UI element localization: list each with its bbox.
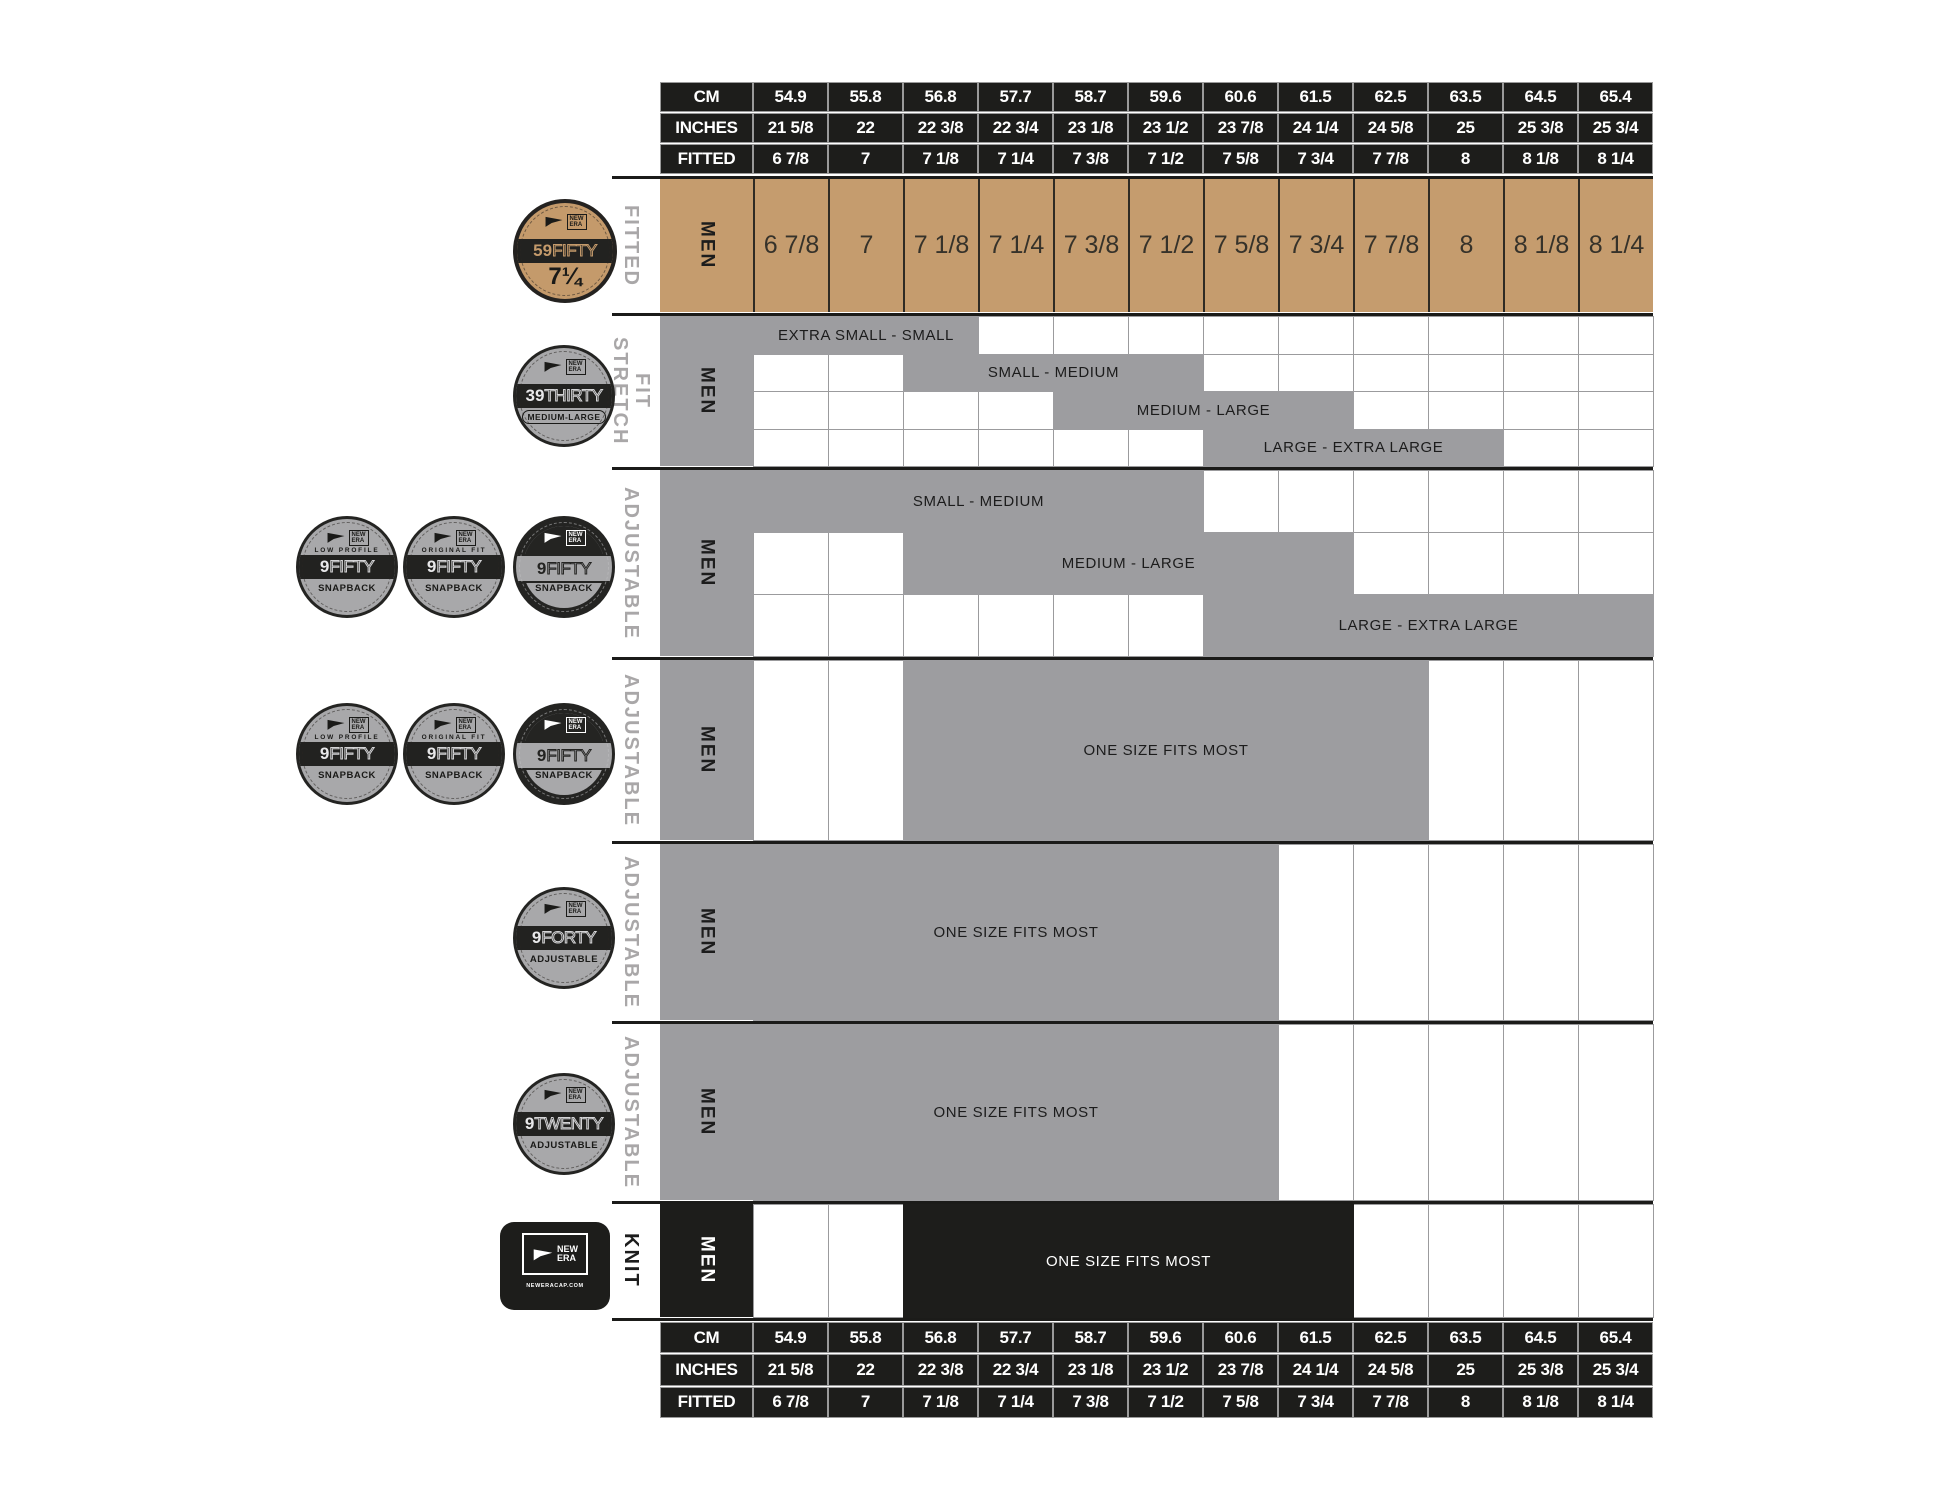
- footer-fitted-cell: 7 7/8: [1353, 1387, 1428, 1418]
- section-label-adjustable-9twenty: ADJUSTABLE: [610, 1022, 652, 1202]
- header-fitted-cell: 7 3/4: [1278, 144, 1353, 174]
- grid-cell: [1503, 844, 1579, 1021]
- section-divider: [612, 1021, 1653, 1024]
- fitted-size-cell: 8: [1428, 179, 1503, 312]
- section-label-adjustable-9forty: ADJUSTABLE: [610, 842, 652, 1022]
- badge-b9fifty-low: NEWERALOW PROFILE9FIFTYSNAPBACK: [296, 516, 398, 618]
- footer-fitted-cell: 7 3/4: [1278, 1387, 1353, 1418]
- header-fitted-cell: 7 5/8: [1203, 144, 1278, 174]
- bar-one-size-fits-most: ONE SIZE FITS MOST: [903, 660, 1429, 841]
- grid-cell: [1203, 354, 1279, 393]
- header-inches-cell: 25: [1428, 113, 1503, 143]
- badge-wordmark: 9FIFTY: [406, 555, 502, 579]
- grid-cell: [1578, 844, 1654, 1021]
- fitted-size-cell: 7 5/8: [1203, 179, 1278, 312]
- badge-wordmark: 39THIRTY: [516, 384, 612, 408]
- footer-inches-cell: 23 7/8: [1203, 1354, 1278, 1385]
- header-cm-cell: 63.5: [1428, 82, 1503, 112]
- fitted-size-cell: 8 1/8: [1503, 179, 1578, 312]
- fitted-size-cell: 7 1/4: [978, 179, 1053, 312]
- header-fitted-cell: 7 1/4: [978, 144, 1053, 174]
- grid-cell: [753, 354, 829, 393]
- header-inches-cell: 23 7/8: [1203, 113, 1278, 143]
- grid-cell: [1578, 532, 1654, 595]
- footer-cm-cell: 63.5: [1428, 1322, 1503, 1353]
- footer-fitted-cell: 8 1/8: [1503, 1387, 1578, 1418]
- badge-b9fifty-low: NEWERALOW PROFILE9FIFTYSNAPBACK: [296, 703, 398, 805]
- footer-inches-cell: 25: [1428, 1354, 1503, 1385]
- grid-cell: [1128, 594, 1204, 657]
- bar-small-medium: SMALL - MEDIUM: [753, 470, 1204, 533]
- fitted-size-cell: 7 1/2: [1128, 179, 1203, 312]
- fitted-size-cell: 7 7/8: [1353, 179, 1428, 312]
- grid-cell: [1578, 316, 1654, 355]
- grid-cell: [1428, 844, 1504, 1021]
- grid-cell: [1578, 1204, 1654, 1318]
- header-cm-cell: 55.8: [828, 82, 903, 112]
- grid-cell: [828, 594, 904, 657]
- grid-cell: [828, 429, 904, 468]
- section-divider: [612, 1318, 1653, 1321]
- grid-cell: [753, 532, 829, 595]
- newera-flag-logo: NEWERA: [299, 530, 395, 547]
- header-row-label-fitted: FITTED: [660, 144, 753, 174]
- grid-cell: [1428, 470, 1504, 533]
- grid-cell: [1503, 532, 1579, 595]
- badge-b9fifty: NEWERA9FIFTYSNAPBACK: [513, 516, 615, 618]
- grid-cell: [1503, 316, 1579, 355]
- fitted-size-cell: 7: [828, 179, 903, 312]
- newera-logo-text: NEW ERA: [557, 1245, 578, 1264]
- newera-flag-logo: NEWERA: [516, 359, 612, 376]
- footer-cm-cell: 56.8: [903, 1322, 978, 1353]
- badge-b39thirty: NEWERA39THIRTYMEDIUM-LARGE: [513, 345, 615, 447]
- newera-flag-logo: NEWERA: [516, 901, 612, 918]
- grid-cell: [828, 391, 904, 430]
- grid-cell: [1053, 594, 1129, 657]
- header-inches-cell: 22 3/8: [903, 113, 978, 143]
- footer-fitted-cell: 7 1/2: [1128, 1387, 1203, 1418]
- grid-cell: [1503, 1204, 1579, 1318]
- header-cm-cell: 59.6: [1128, 82, 1203, 112]
- section-label-adjustable-9fifty-b: ADJUSTABLE: [610, 658, 652, 842]
- header-inches-cell: 23 1/8: [1053, 113, 1128, 143]
- header-fitted-cell: 7 1/8: [903, 144, 978, 174]
- newera-flag-logo: NEW ERA: [522, 1233, 588, 1275]
- flag-icon: [543, 1088, 563, 1101]
- header-inches-cell: 24 5/8: [1353, 113, 1428, 143]
- badge-wordmark: 9FIFTY: [406, 742, 502, 766]
- footer-inches-cell: 22 3/4: [978, 1354, 1053, 1385]
- grid-cell: [1428, 1204, 1504, 1318]
- header-cm-cell: 62.5: [1353, 82, 1428, 112]
- section-divider: [612, 176, 1653, 179]
- fitted-size-cell: 7 3/4: [1278, 179, 1353, 312]
- header-inches-cell: 21 5/8: [753, 113, 828, 143]
- new-era-size-chart: NEW ERA NEWERACAP.COM CM54.955.856.857.7…: [0, 0, 1946, 1504]
- grid-cell: [753, 1204, 829, 1318]
- grid-cell: [1203, 470, 1279, 533]
- footer-cm-cell: 58.7: [1053, 1322, 1128, 1353]
- grid-cell: [1578, 470, 1654, 533]
- fitted-size-cell: 6 7/8: [753, 179, 828, 312]
- footer-fitted-cell: 6 7/8: [753, 1387, 828, 1418]
- grid-cell: [1503, 354, 1579, 393]
- grid-cell: [1278, 470, 1354, 533]
- footer-cm-cell: 54.9: [753, 1322, 828, 1353]
- fitted-size-cell: 7 3/8: [1053, 179, 1128, 312]
- grid-cell: [903, 391, 979, 430]
- grid-cell: [903, 429, 979, 468]
- grid-cell: [1428, 532, 1504, 595]
- grid-cell: [1428, 316, 1504, 355]
- bar-extra-small-small: EXTRA SMALL - SMALL: [753, 316, 979, 355]
- fitted-size-cell: 7 1/8: [903, 179, 978, 312]
- footer-inches-cell: 22: [828, 1354, 903, 1385]
- footer-fitted-cell: 7 1/8: [903, 1387, 978, 1418]
- flag-icon: [326, 718, 346, 731]
- newera-flag-logo: NEWERA: [516, 1087, 612, 1104]
- footer-cm-cell: 62.5: [1353, 1322, 1428, 1353]
- newera-flag-logo: NEWERA: [516, 530, 612, 547]
- badge-wordmark: 59FIFTY: [517, 239, 613, 263]
- grid-cell: [753, 660, 829, 841]
- footer-inches-cell: 25 3/4: [1578, 1354, 1653, 1385]
- grid-cell: [1428, 391, 1504, 430]
- grid-cell: [978, 316, 1054, 355]
- section-divider: [612, 1201, 1653, 1204]
- grid-cell: [1503, 391, 1579, 430]
- footer-cm-cell: 64.5: [1503, 1322, 1578, 1353]
- footer-row-label-fitted: FITTED: [660, 1387, 753, 1418]
- header-cm-cell: 60.6: [1203, 82, 1278, 112]
- header-inches-cell: 23 1/2: [1128, 113, 1203, 143]
- men-column-adjustable-9fifty-b: MEN: [660, 660, 753, 840]
- grid-cell: [903, 594, 979, 657]
- grid-cell: [1353, 1204, 1429, 1318]
- grid-cell: [1053, 316, 1129, 355]
- grid-cell: [1428, 660, 1504, 841]
- bar-large-extra-large: LARGE - EXTRA LARGE: [1203, 594, 1654, 657]
- footer-cm-cell: 61.5: [1278, 1322, 1353, 1353]
- grid-cell: [1128, 429, 1204, 468]
- newera-flag-logo: NEWERA: [517, 214, 613, 231]
- fitted-sizes-row: 6 7/877 1/87 1/47 3/87 1/27 5/87 3/47 7/…: [753, 179, 1653, 312]
- grid-cell: [828, 660, 904, 841]
- grid-cell: [1353, 844, 1429, 1021]
- section-label-knit: KNIT: [610, 1202, 652, 1319]
- header-cm-cell: 58.7: [1053, 82, 1128, 112]
- header-cm-cell: 57.7: [978, 82, 1053, 112]
- knit-newera-badge: NEW ERA NEWERACAP.COM: [500, 1222, 610, 1310]
- footer-fitted-cell: 7: [828, 1387, 903, 1418]
- grid-cell: [1278, 354, 1354, 393]
- grid-cell: [1578, 1024, 1654, 1201]
- grid-cell: [1503, 470, 1579, 533]
- header-cm-cell: 65.4: [1578, 82, 1653, 112]
- badge-wordmark: 9FORTY: [516, 926, 612, 950]
- grid-cell: [1503, 429, 1579, 468]
- badge-wordmark: 9TWENTY: [516, 1112, 612, 1136]
- grid-cell: [1578, 660, 1654, 841]
- footer-fitted-cell: 7 5/8: [1203, 1387, 1278, 1418]
- flag-icon: [433, 531, 453, 544]
- grid-cell: [978, 429, 1054, 468]
- badge-b9forty: NEWERA9FORTYADJUSTABLE: [513, 887, 615, 989]
- grid-cell: [1128, 316, 1204, 355]
- badge-b9fifty-orig: NEWERAORIGINAL FIT9FIFTYSNAPBACK: [403, 703, 505, 805]
- footer-cm-cell: 55.8: [828, 1322, 903, 1353]
- header-fitted-cell: 8 1/4: [1578, 144, 1653, 174]
- header-fitted-cell: 8: [1428, 144, 1503, 174]
- header-cm-cell: 61.5: [1278, 82, 1353, 112]
- grid-cell: [978, 391, 1054, 430]
- grid-cell: [828, 532, 904, 595]
- header-cm-cell: 56.8: [903, 82, 978, 112]
- grid-cell: [978, 594, 1054, 657]
- bar-large-extra-large: LARGE - EXTRA LARGE: [1203, 429, 1504, 468]
- fitted-size-cell: 8 1/4: [1578, 179, 1653, 312]
- section-divider: [612, 841, 1653, 844]
- grid-cell: [1578, 429, 1654, 468]
- header-fitted-cell: 8 1/8: [1503, 144, 1578, 174]
- grid-cell: [828, 354, 904, 393]
- footer-inches-cell: 22 3/8: [903, 1354, 978, 1385]
- header-inches-cell: 25 3/4: [1578, 113, 1653, 143]
- section-divider: [612, 313, 1653, 316]
- grid-cell: [1203, 316, 1279, 355]
- grid-cell: [1278, 1024, 1354, 1201]
- footer-fitted-cell: 8 1/4: [1578, 1387, 1653, 1418]
- men-column-adjustable-9twenty: MEN: [660, 1024, 753, 1200]
- header-inches-cell: 22: [828, 113, 903, 143]
- footer-fitted-cell: 7 3/8: [1053, 1387, 1128, 1418]
- header-fitted-cell: 7: [828, 144, 903, 174]
- footer-fitted-cell: 7 1/4: [978, 1387, 1053, 1418]
- grid-cell: [753, 429, 829, 468]
- footer-inches-cell: 24 5/8: [1353, 1354, 1428, 1385]
- flag-icon: [544, 215, 564, 228]
- badge-wordmark: 9FIFTY: [299, 555, 395, 579]
- grid-cell: [1278, 844, 1354, 1021]
- badge-b9fifty: NEWERA9FIFTYSNAPBACK: [513, 703, 615, 805]
- men-column-adjustable-9fifty-a: MEN: [660, 470, 753, 656]
- header-inches-cell: 25 3/8: [1503, 113, 1578, 143]
- grid-cell: [1353, 1024, 1429, 1201]
- badge-b9fifty-orig: NEWERAORIGINAL FIT9FIFTYSNAPBACK: [403, 516, 505, 618]
- flag-icon: [326, 531, 346, 544]
- grid-cell: [1053, 429, 1129, 468]
- newera-flag-logo: NEWERA: [406, 530, 502, 547]
- flag-icon: [433, 718, 453, 731]
- footer-fitted-cell: 8: [1428, 1387, 1503, 1418]
- header-fitted-cell: 6 7/8: [753, 144, 828, 174]
- grid-cell: [1503, 1024, 1579, 1201]
- header-row-label-inches: INCHES: [660, 113, 753, 143]
- flag-icon: [532, 1247, 554, 1262]
- badge-wordmark: 9FIFTY: [516, 554, 612, 584]
- section-divider: [612, 657, 1653, 660]
- footer-row-label-inches: INCHES: [660, 1354, 753, 1385]
- footer-row-label-cm: CM: [660, 1322, 753, 1353]
- grid-cell: [828, 1204, 904, 1318]
- grid-cell: [1428, 354, 1504, 393]
- newera-url: NEWERACAP.COM: [500, 1283, 610, 1289]
- bar-one-size-fits-most: ONE SIZE FITS MOST: [753, 844, 1279, 1021]
- newera-flag-logo: NEWERA: [406, 717, 502, 734]
- bar-one-size-fits-most: ONE SIZE FITS MOST: [903, 1204, 1354, 1318]
- grid-cell: [1578, 391, 1654, 430]
- men-column-fitted: MEN: [660, 179, 753, 312]
- footer-cm-cell: 60.6: [1203, 1322, 1278, 1353]
- footer-cm-cell: 59.6: [1128, 1322, 1203, 1353]
- grid-cell: [753, 594, 829, 657]
- flag-icon: [543, 718, 563, 731]
- flag-icon: [543, 531, 563, 544]
- men-column-knit: MEN: [660, 1204, 753, 1317]
- bar-small-medium: SMALL - MEDIUM: [903, 354, 1204, 393]
- grid-cell: [1428, 1024, 1504, 1201]
- grid-cell: [1578, 354, 1654, 393]
- newera-flag-logo: NEWERA: [516, 717, 612, 734]
- footer-inches-cell: 24 1/4: [1278, 1354, 1353, 1385]
- section-label-stretch-fit: STRETCH FIT: [610, 314, 652, 468]
- grid-cell: [1278, 316, 1354, 355]
- grid-cell: [1353, 470, 1429, 533]
- footer-inches-cell: 25 3/8: [1503, 1354, 1578, 1385]
- badge-b9twenty: NEWERA9TWENTYADJUSTABLE: [513, 1073, 615, 1175]
- bar-medium-large: MEDIUM - LARGE: [1053, 391, 1354, 430]
- section-label-adjustable-9fifty-a: ADJUSTABLE: [610, 468, 652, 658]
- grid-cell: [1353, 316, 1429, 355]
- header-row-label-cm: CM: [660, 82, 753, 112]
- grid-cell: [1353, 532, 1429, 595]
- grid-cell: [1353, 391, 1429, 430]
- grid-cell: [753, 391, 829, 430]
- header-fitted-cell: 7 3/8: [1053, 144, 1128, 174]
- header-fitted-cell: 7 1/2: [1128, 144, 1203, 174]
- header-cm-cell: 54.9: [753, 82, 828, 112]
- men-column-adjustable-9forty: MEN: [660, 844, 753, 1020]
- men-column-stretch-fit: MEN: [660, 316, 753, 466]
- header-inches-cell: 22 3/4: [978, 113, 1053, 143]
- badge-b59fifty: NEWERA59FIFTY7¼: [513, 199, 617, 303]
- grid-cell: [1353, 354, 1429, 393]
- section-divider: [612, 467, 1653, 470]
- badge-wordmark: 9FIFTY: [299, 742, 395, 766]
- grid-cell: [1503, 660, 1579, 841]
- footer-inches-cell: 23 1/2: [1128, 1354, 1203, 1385]
- footer-inches-cell: 23 1/8: [1053, 1354, 1128, 1385]
- footer-cm-cell: 65.4: [1578, 1322, 1653, 1353]
- flag-icon: [543, 902, 563, 915]
- badge-wordmark: 9FIFTY: [516, 741, 612, 771]
- bar-medium-large: MEDIUM - LARGE: [903, 532, 1354, 595]
- footer-inches-cell: 21 5/8: [753, 1354, 828, 1385]
- bar-one-size-fits-most: ONE SIZE FITS MOST: [753, 1024, 1279, 1201]
- footer-cm-cell: 57.7: [978, 1322, 1053, 1353]
- header-fitted-cell: 7 7/8: [1353, 144, 1428, 174]
- newera-flag-logo: NEWERA: [299, 717, 395, 734]
- header-inches-cell: 24 1/4: [1278, 113, 1353, 143]
- header-cm-cell: 64.5: [1503, 82, 1578, 112]
- flag-icon: [543, 360, 563, 373]
